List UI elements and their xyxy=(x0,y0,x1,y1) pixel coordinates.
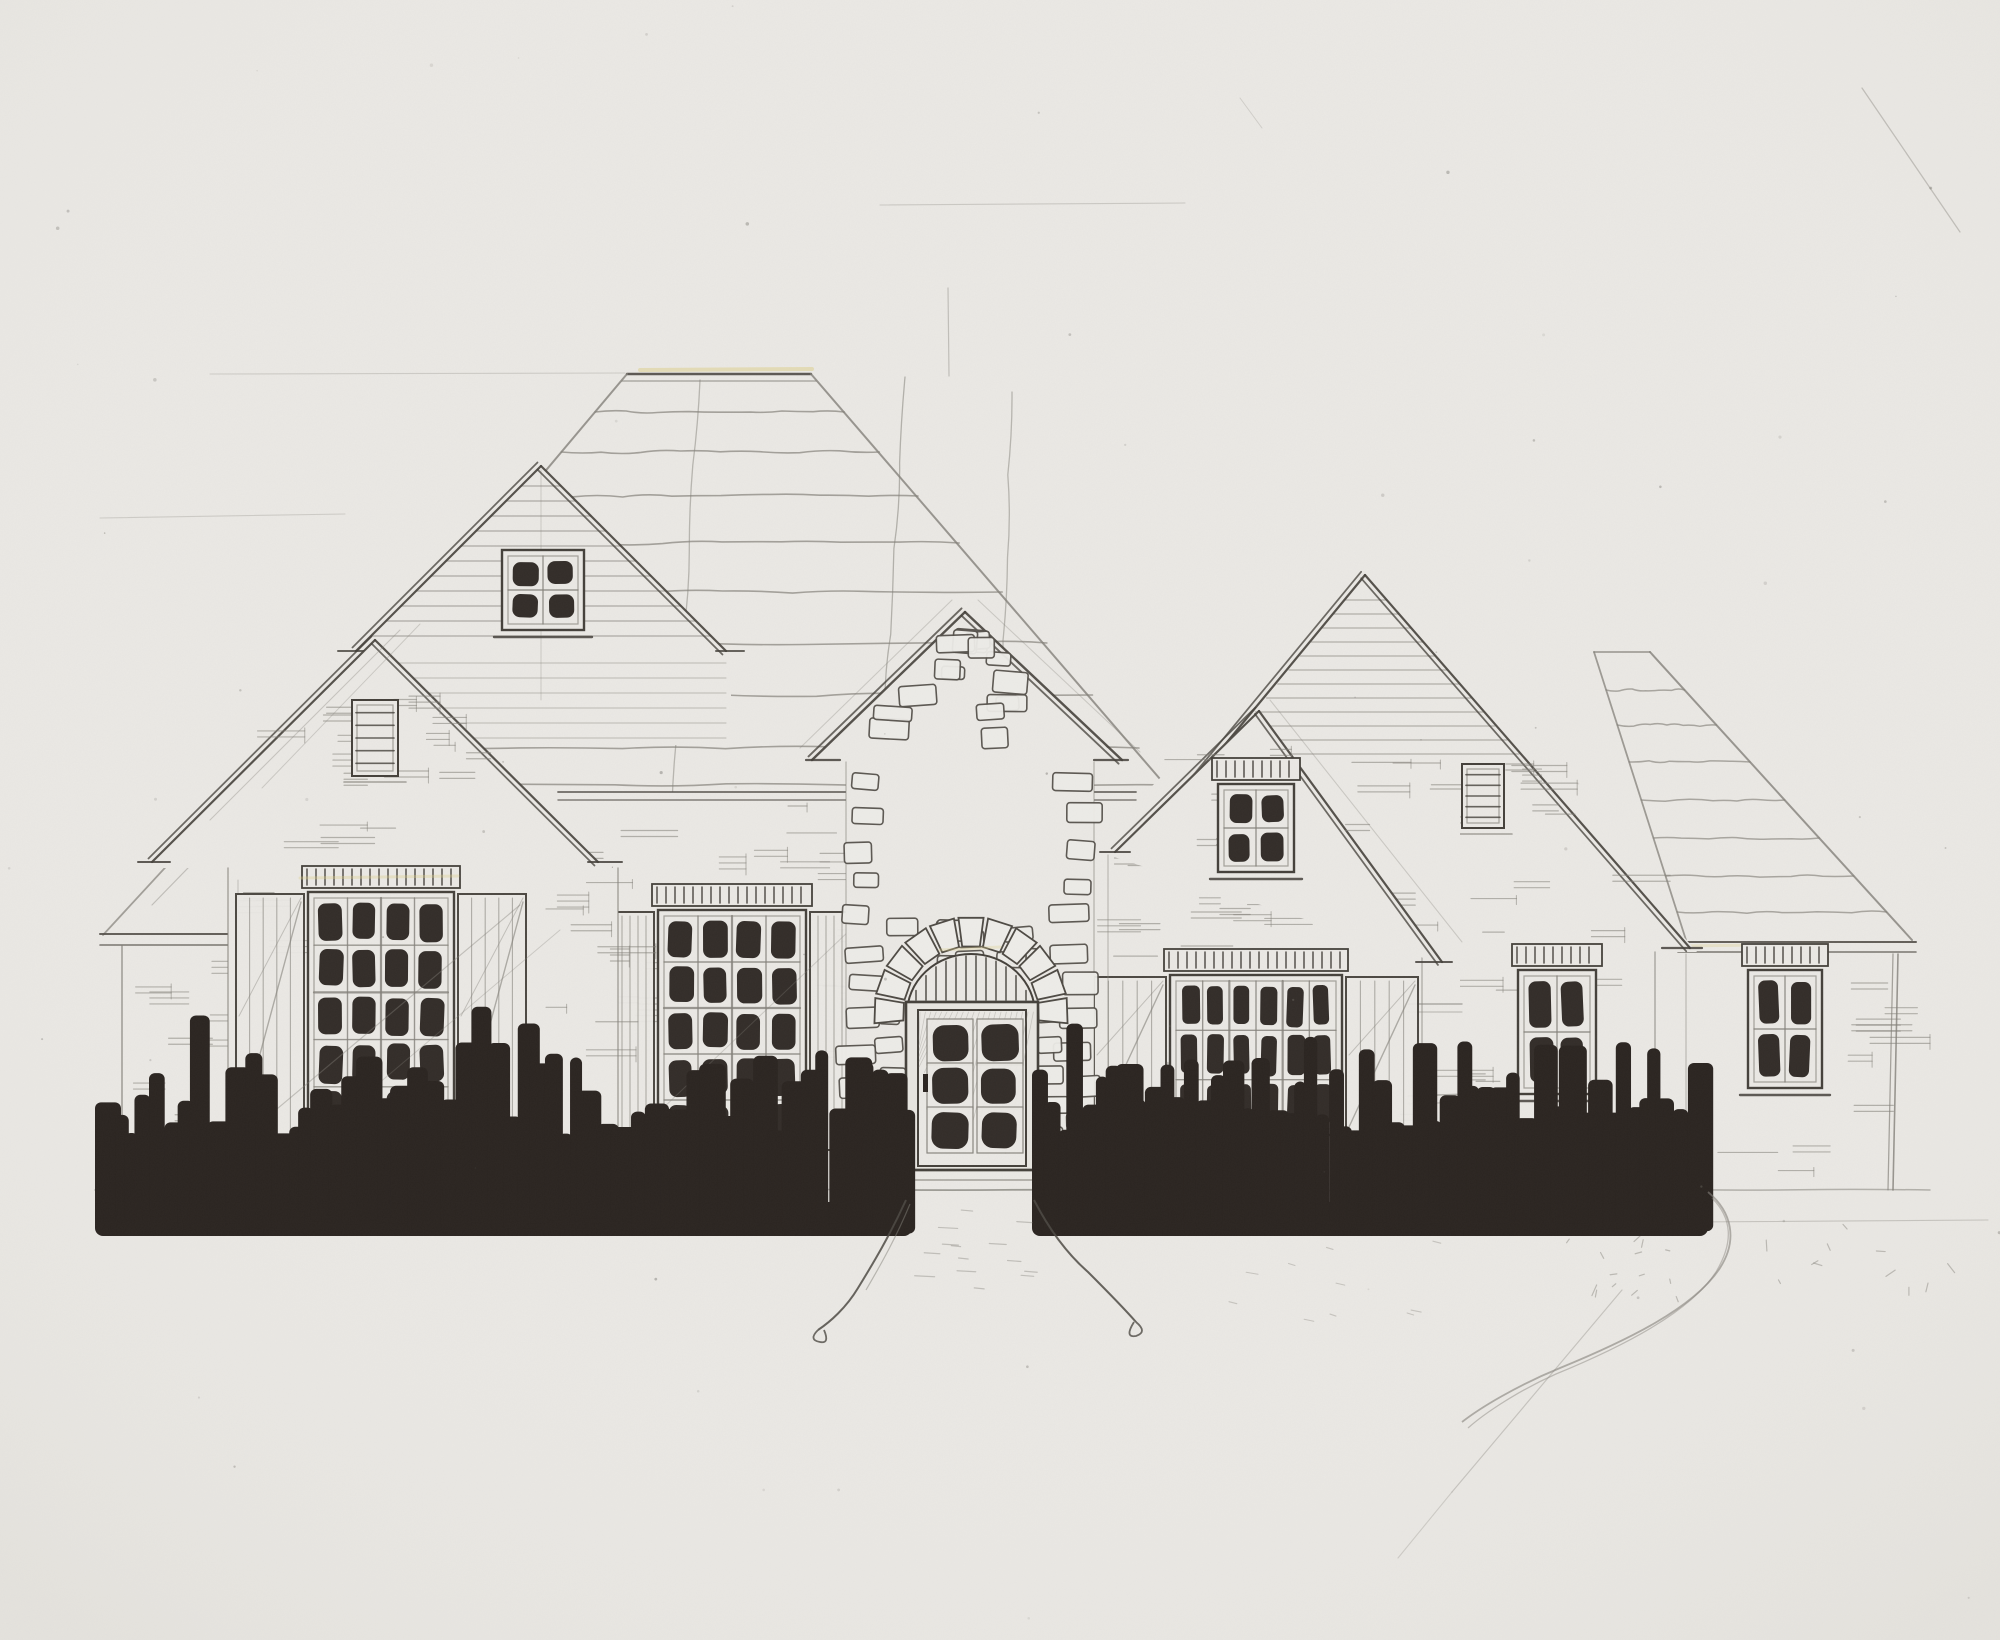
scanned-sketch-page: Hand-drawn front elevation sketch of a s… xyxy=(0,0,2000,1640)
paper-grain-overlay xyxy=(0,0,2000,1640)
house-elevation-drawing xyxy=(0,0,2000,1640)
